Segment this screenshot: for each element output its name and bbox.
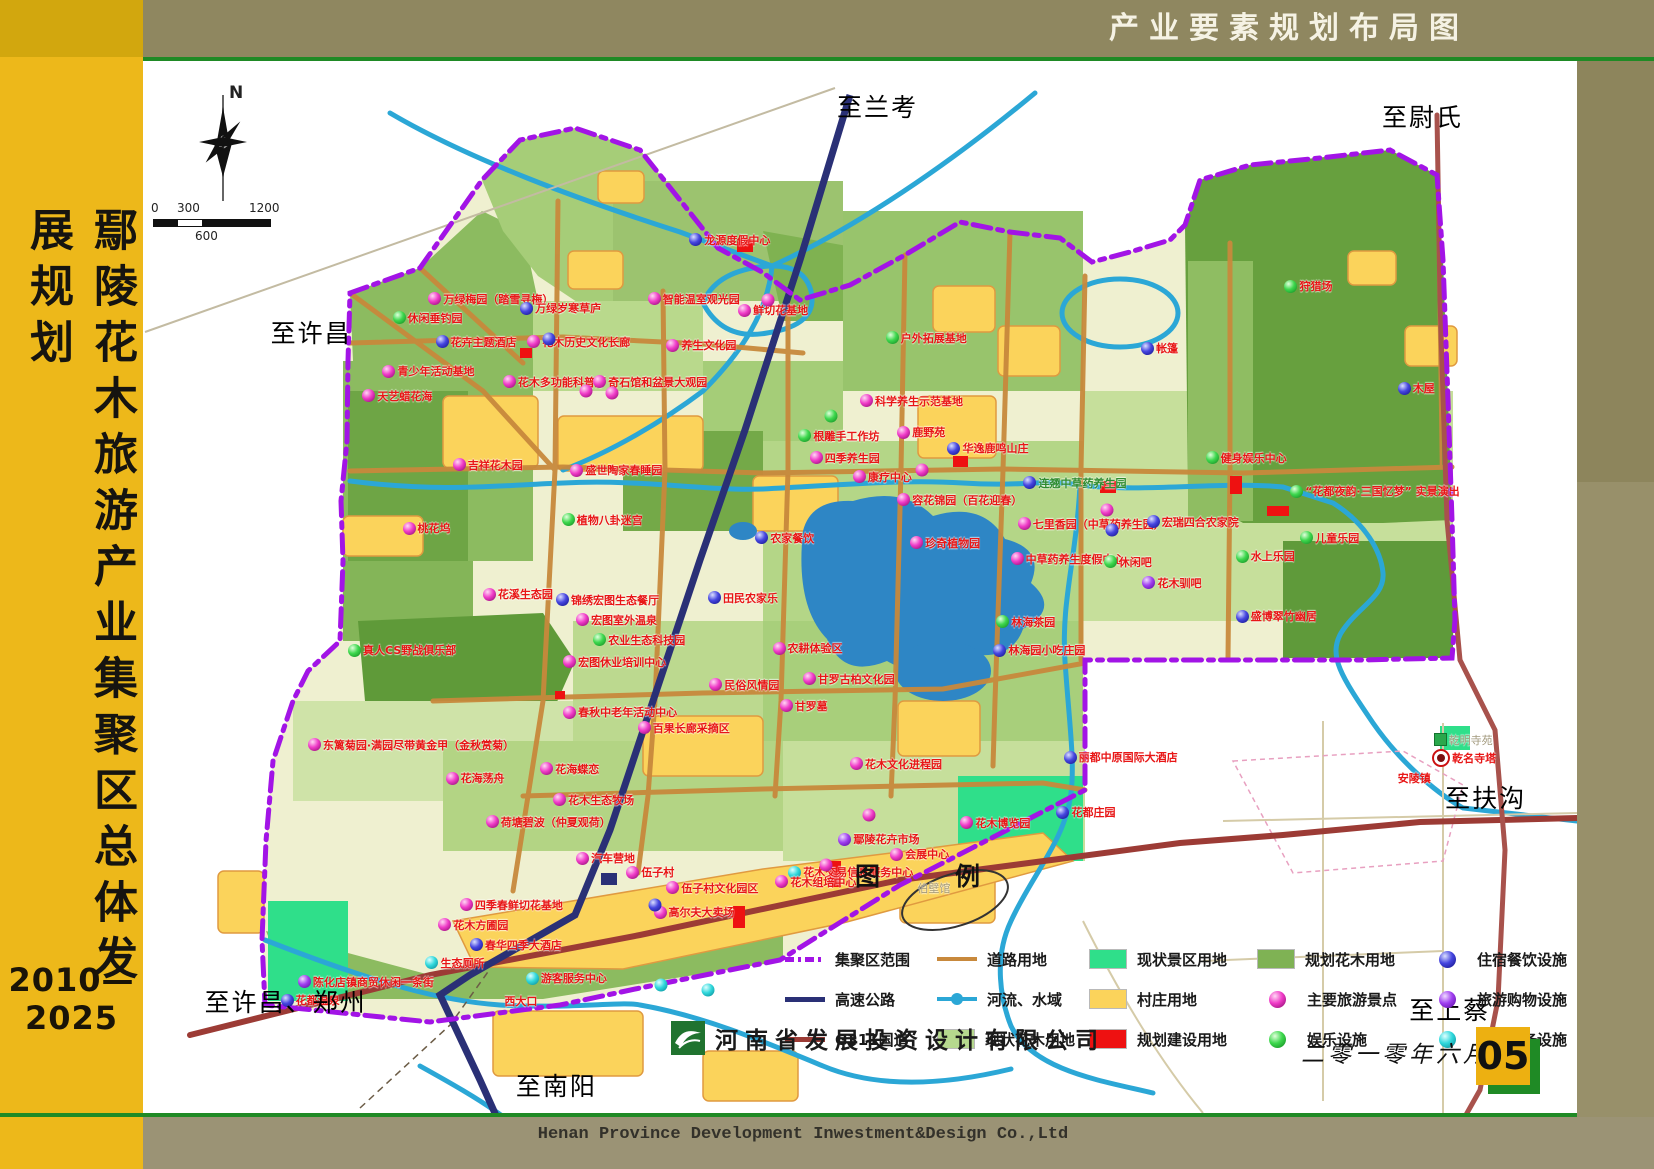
- planning-map-page: 产业要素规划布局图 鄢陵花木旅游产业集聚区总体发展规划 2010—2025: [0, 0, 1654, 1169]
- sidebar: 鄢陵花木旅游产业集聚区总体发展规划 2010—2025: [0, 57, 143, 1169]
- plan-period: 2010—2025: [0, 961, 143, 1037]
- legend-item: 规划花木用地: [1257, 939, 1427, 979]
- magenta-sphere-icon: [1269, 991, 1286, 1008]
- footer-bar: Henan Province Development Inwestment&De…: [143, 1117, 1654, 1169]
- company-signature: 河南省发展投资设计有限公司: [671, 1021, 1105, 1055]
- footer-sidebar-block: [0, 1117, 143, 1169]
- legend-symbol-sph-blue: [1427, 951, 1467, 968]
- legend-label: 现状景区用地: [1137, 949, 1227, 970]
- legend-title: 图 例: [855, 857, 980, 893]
- compass: N: [179, 79, 275, 219]
- page-number: 05: [1476, 1027, 1530, 1085]
- legend-symbol-orange: [937, 957, 977, 961]
- blue-sphere-icon: [1439, 951, 1456, 968]
- corner-block: [0, 0, 143, 57]
- legend-label: 规划花木用地: [1305, 949, 1395, 970]
- legend-item: 现状景区用地: [1089, 939, 1257, 979]
- map-sheet: N 0 300 1200 600 龙源度假中心万绿梅园（踏雪寻梅）休闲垂钓园万绿…: [143, 61, 1577, 1113]
- legend-label: 规划建设用地: [1137, 1029, 1227, 1050]
- legend-symbol-village: [1089, 989, 1127, 1009]
- legend-symbol-navy: [785, 997, 825, 1002]
- north-label: N: [229, 83, 243, 103]
- green-sphere-icon: [1269, 1031, 1286, 1048]
- map-date: 二零一零年六月: [1301, 1035, 1490, 1069]
- plan-title-vertical: 鄢陵花木旅游产业集聚区总体发展规划: [0, 207, 143, 1037]
- scale-tick: 600: [195, 229, 218, 243]
- company-name: 河南省发展投资设计有限公司: [715, 1021, 1105, 1055]
- legend-label: 道路用地: [987, 949, 1047, 970]
- company-logo-icon: [671, 1021, 705, 1055]
- right-margin: [1577, 61, 1654, 1169]
- legend-label: 河流、水域: [987, 989, 1062, 1010]
- company-name-en: Henan Province Development Inwestment&De…: [303, 1125, 1303, 1144]
- legend-label: 住宿餐饮设施: [1477, 949, 1567, 970]
- scale-bar-graphic: [153, 219, 271, 227]
- legend-label: 村庄用地: [1137, 989, 1197, 1010]
- legend-label: 主要旅游景点: [1307, 989, 1397, 1010]
- page-title: 产业要素规划布局图: [1109, 0, 1469, 57]
- legend-symbol-sph-violet: [1427, 991, 1467, 1008]
- legend-item: 主要旅游景点: [1257, 979, 1427, 1019]
- scale-bar: 0 300 1200 600: [151, 201, 283, 249]
- scale-tick: 0: [151, 201, 159, 215]
- legend-label: 高速公路: [835, 989, 895, 1010]
- legend-item: 住宿餐饮设施: [1427, 939, 1577, 979]
- legend-item: 规划建设用地: [1089, 1019, 1257, 1059]
- legend-symbol-boundary: [785, 957, 825, 962]
- legend-symbol-midgreen: [1257, 949, 1295, 969]
- legend-item: 旅游购物设施: [1427, 979, 1577, 1019]
- legend-label: 旅游购物设施: [1477, 989, 1567, 1010]
- legend-item: 村庄用地: [1089, 979, 1257, 1019]
- legend-item: 高速公路: [785, 979, 937, 1019]
- town-boundary-pink: [1233, 751, 1463, 873]
- legend-item: 集聚区范围: [785, 939, 937, 979]
- compass-rose-icon: [179, 79, 275, 219]
- legend-item: 道路用地: [937, 939, 1089, 979]
- legend-item: 河流、水域: [937, 979, 1089, 1019]
- violet-sphere-icon: [1439, 991, 1456, 1008]
- legend-column: 现状景区用地村庄用地规划建设用地: [1089, 939, 1257, 1059]
- scale-tick: 300: [177, 201, 200, 215]
- legend-symbol-sph-green: [1257, 1031, 1297, 1048]
- legend-symbol-sph-magenta: [1257, 991, 1297, 1008]
- legend-symbol-scenic: [1089, 949, 1127, 969]
- header-bar: 产业要素规划布局图: [143, 0, 1654, 57]
- legend-label: 集聚区范围: [835, 949, 910, 970]
- scale-tick: 1200: [249, 201, 280, 215]
- legend-symbol-river: [937, 997, 977, 1001]
